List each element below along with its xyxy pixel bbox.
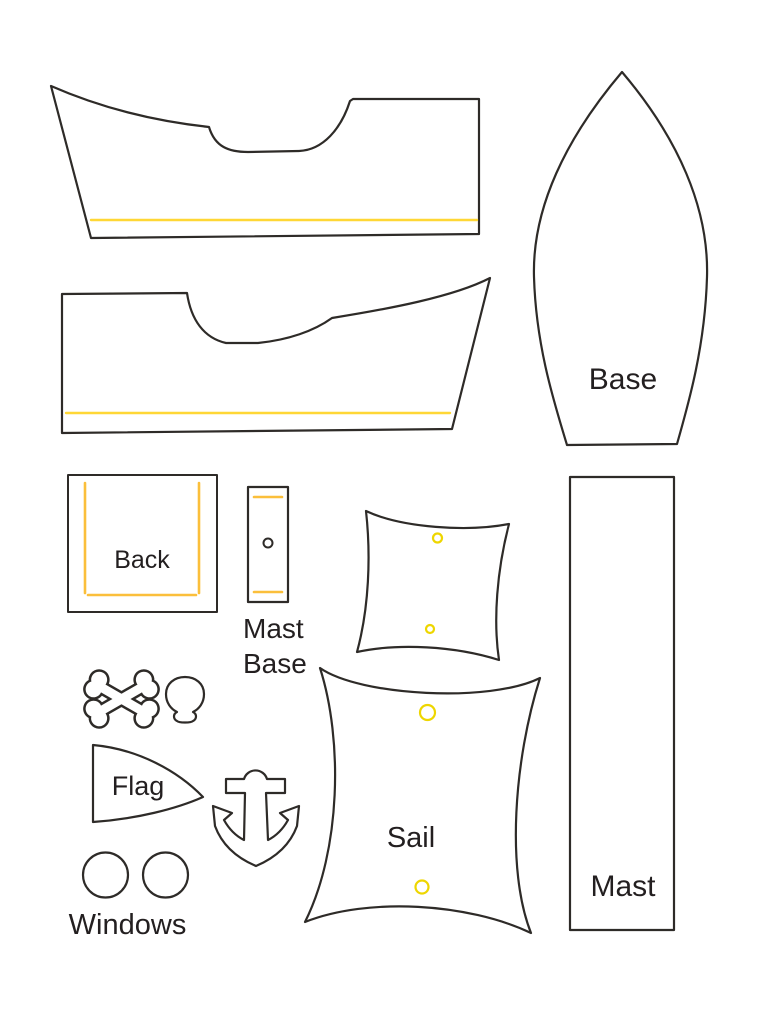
crossbones-piece-outline (83, 669, 161, 729)
mast-base-piece-label: Mast Base (243, 611, 343, 681)
hull-side-piece-2-outline (62, 278, 490, 433)
back-piece-outline (68, 475, 217, 612)
mast-piece-label: Mast (563, 870, 683, 905)
sail-piece-label: Sail (351, 822, 471, 855)
window-piece-right (143, 853, 188, 898)
window-piece-left (83, 853, 128, 898)
small-sail-piece-outline (357, 511, 509, 660)
skull-piece-outline (166, 677, 204, 723)
base-piece-label: Base (563, 363, 683, 398)
windows-piece-label: Windows (57, 909, 198, 942)
mast-piece-outline (570, 477, 674, 930)
mast-base-piece-outline (248, 487, 288, 602)
pattern-sheet: Base Back Mast Base Flag Sail Windows Ma… (0, 0, 768, 1024)
flag-piece-label: Flag (88, 771, 188, 802)
mast-base-label-line1: Mast (243, 611, 343, 646)
anchor-piece-outline (213, 770, 299, 866)
hull-side-piece-1-outline (51, 86, 479, 238)
back-piece-label: Back (82, 546, 202, 575)
mast-base-label-line2: Base (243, 646, 343, 681)
